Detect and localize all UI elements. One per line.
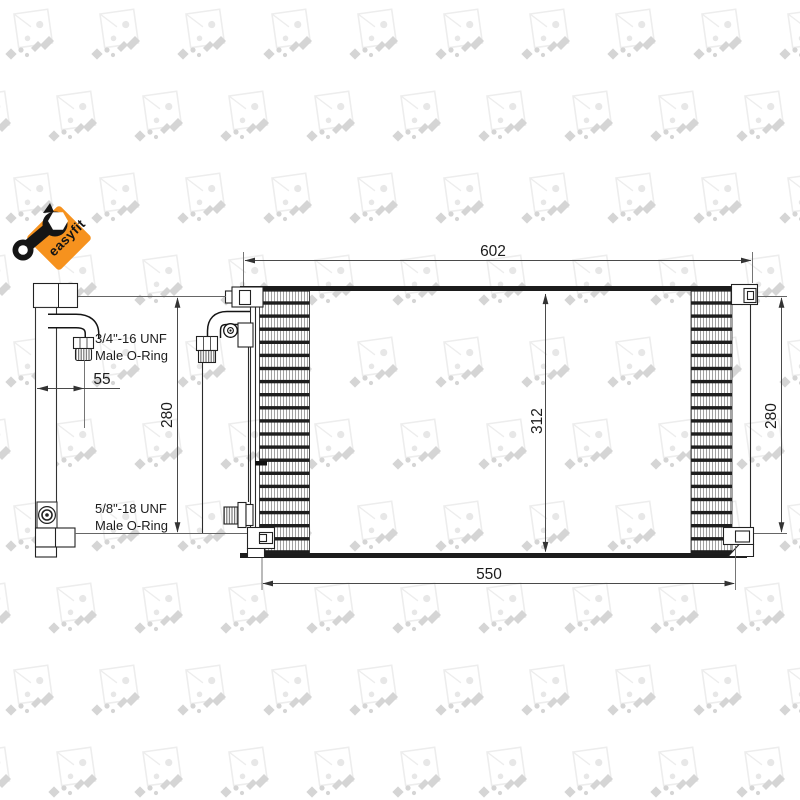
side-core-profile [36,308,57,529]
drier-tick-mark [255,461,267,466]
fin-core-left [260,291,310,553]
dimension-602: 602 [244,243,753,286]
dim-core-height-value: 312 [529,408,546,434]
bracket-top-right [732,285,758,305]
condenser-drawing: 602 550 280 280 [0,0,800,800]
inlet-elbow-fitting [197,318,254,363]
top-fitting-label-line1: 3/4"-16 UNF [95,331,168,348]
side-oring-port [37,502,57,528]
front-view [197,285,758,559]
top-fitting-label: 3/4"-16 UNF Male O-Ring [95,331,168,364]
side-top-block [34,284,78,308]
dimension-280-right: 280 [754,297,787,534]
easyfit-badge: easyfit [8,196,104,286]
dim-left-height-value: 280 [159,402,176,428]
dim-right-height-value: 280 [763,403,780,429]
top-fitting-label-line2: Male O-Ring [95,348,168,365]
bottom-fitting-label: 5/8"-18 UNF Male O-Ring [95,501,168,534]
bottom-fitting-label-line1: 5/8"-18 UNF [95,501,168,518]
dim-overall-width-value: 602 [480,243,506,260]
dim-fitting-offset-value: 55 [93,371,110,388]
fin-core-right [691,291,732,553]
outlet-fitting [224,503,253,528]
technical-drawing-canvas: 602 550 280 280 [0,0,800,800]
bottom-header-bar [240,553,747,558]
dimension-550: 550 [262,546,736,590]
bottom-fitting-label-line2: Male O-Ring [95,518,168,535]
dimension-312: 312 [529,294,548,553]
dim-mounting-width-value: 550 [476,566,502,583]
bracket-top-left [226,287,264,307]
top-header-bar [240,286,747,291]
side-bottom-block [36,528,76,557]
